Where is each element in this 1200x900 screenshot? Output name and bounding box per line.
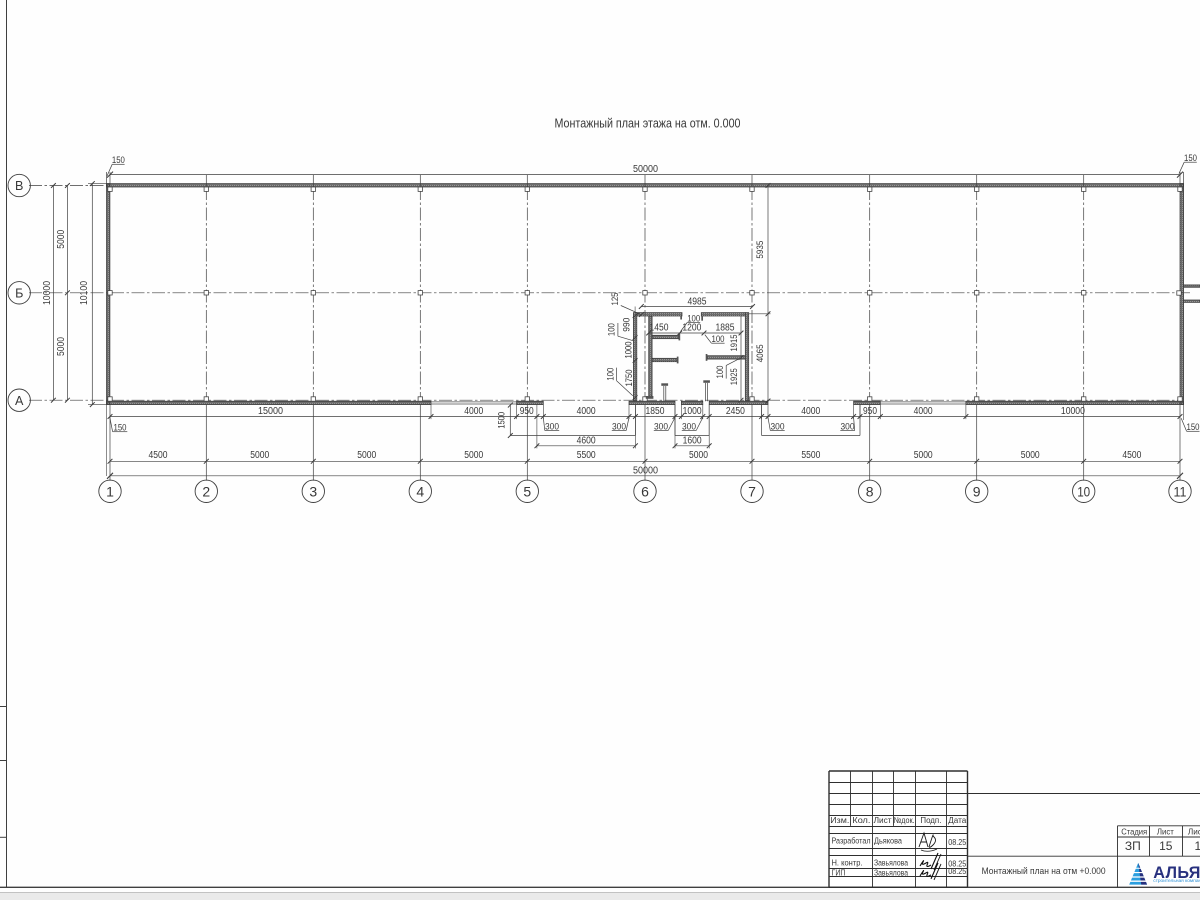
svg-text:990: 990	[622, 318, 632, 332]
svg-text:1450: 1450	[650, 323, 669, 334]
svg-text:150: 150	[114, 422, 127, 432]
svg-text:15000: 15000	[258, 406, 283, 417]
svg-text:5000: 5000	[56, 229, 67, 248]
svg-text:1200: 1200	[682, 323, 701, 334]
svg-text:Дата: Дата	[948, 815, 966, 825]
svg-text:100: 100	[712, 334, 725, 344]
svg-text:1925: 1925	[729, 368, 739, 385]
svg-text:5000: 5000	[914, 450, 933, 461]
svg-text:ГИП: ГИП	[832, 868, 846, 878]
svg-text:2: 2	[202, 483, 210, 499]
svg-text:10000: 10000	[42, 281, 53, 305]
svg-text:4500: 4500	[149, 450, 168, 461]
svg-text:1885: 1885	[716, 323, 735, 334]
svg-text:1600: 1600	[683, 435, 702, 446]
svg-text:Н. контр.: Н. контр.	[832, 858, 863, 868]
svg-text:5000: 5000	[1021, 450, 1040, 461]
svg-text:4000: 4000	[577, 406, 596, 417]
svg-text:ЗП: ЗП	[1125, 839, 1141, 853]
svg-text:4000: 4000	[801, 406, 820, 417]
svg-text:08.25: 08.25	[948, 837, 966, 847]
svg-text:Лист: Лист	[874, 815, 892, 825]
svg-text:150: 150	[1184, 153, 1197, 163]
svg-text:Завьялова: Завьялова	[874, 858, 908, 868]
svg-text:Монтажный план на отм +0.000: Монтажный план на отм +0.000	[982, 866, 1106, 877]
svg-text:300: 300	[654, 421, 668, 431]
svg-text:300: 300	[841, 421, 855, 431]
svg-text:Лист: Лист	[1157, 826, 1174, 836]
svg-text:2450: 2450	[726, 406, 745, 417]
svg-text:4: 4	[416, 483, 424, 499]
svg-text:10100: 10100	[79, 281, 90, 305]
svg-text:950: 950	[863, 406, 877, 417]
svg-text:Кол.: Кол.	[852, 815, 870, 825]
svg-text:9: 9	[973, 483, 981, 499]
svg-text:Завьялова: Завьялова	[874, 868, 908, 878]
svg-text:5500: 5500	[801, 450, 820, 461]
svg-text:5935: 5935	[755, 241, 765, 259]
svg-text:4500: 4500	[1122, 450, 1141, 461]
svg-text:№док.: №док.	[894, 815, 915, 825]
svg-text:1: 1	[106, 483, 114, 499]
svg-text:Разработал: Разработал	[832, 835, 871, 845]
svg-text:А: А	[15, 394, 24, 408]
svg-text:150: 150	[112, 155, 125, 165]
svg-text:1850: 1850	[646, 406, 665, 417]
svg-text:300: 300	[612, 421, 626, 431]
svg-text:4985: 4985	[688, 296, 707, 307]
svg-text:4000: 4000	[914, 406, 933, 417]
svg-text:Изм.: Изм.	[830, 815, 849, 825]
svg-text:3: 3	[309, 483, 317, 499]
svg-text:В: В	[15, 179, 23, 193]
svg-text:50000: 50000	[633, 466, 658, 477]
svg-text:1000: 1000	[683, 406, 702, 417]
svg-text:50000: 50000	[633, 164, 658, 175]
svg-text:100: 100	[607, 323, 617, 336]
svg-text:100: 100	[605, 368, 615, 381]
svg-text:7: 7	[748, 483, 756, 499]
svg-text:5000: 5000	[56, 337, 67, 356]
svg-text:6: 6	[641, 483, 649, 499]
svg-text:08.25: 08.25	[948, 866, 966, 876]
svg-text:Б: Б	[15, 286, 23, 300]
svg-text:10000: 10000	[1061, 406, 1085, 417]
svg-text:5500: 5500	[577, 450, 596, 461]
svg-text:4600: 4600	[577, 435, 596, 446]
svg-text:Подп.: Подп.	[920, 815, 941, 825]
svg-text:150: 150	[1187, 422, 1200, 432]
svg-text:125: 125	[610, 293, 620, 306]
svg-text:300: 300	[771, 421, 785, 431]
svg-text:100: 100	[715, 366, 725, 379]
svg-text:5000: 5000	[464, 450, 483, 461]
svg-text:300: 300	[682, 421, 696, 431]
svg-text:Стадия: Стадия	[1121, 826, 1147, 836]
svg-text:Лис: Лис	[1188, 826, 1200, 836]
svg-text:Дьякова: Дьякова	[874, 835, 902, 845]
svg-text:1: 1	[1195, 839, 1200, 853]
svg-text:10: 10	[1077, 483, 1090, 499]
svg-text:5: 5	[523, 483, 531, 499]
svg-text:1750: 1750	[624, 370, 634, 387]
svg-text:1915: 1915	[729, 335, 739, 352]
svg-text:300: 300	[545, 421, 559, 431]
svg-text:1000: 1000	[623, 342, 633, 359]
svg-text:8: 8	[866, 483, 874, 499]
svg-text:100: 100	[687, 313, 700, 323]
svg-text:строительная компания: строительная компания	[1153, 879, 1200, 884]
svg-text:4000: 4000	[464, 406, 483, 417]
svg-text:5000: 5000	[689, 450, 708, 461]
svg-text:11: 11	[1174, 483, 1187, 499]
svg-text:5000: 5000	[250, 450, 269, 461]
svg-text:1500: 1500	[496, 412, 506, 429]
svg-text:5000: 5000	[357, 450, 376, 461]
svg-text:4065: 4065	[755, 344, 765, 362]
svg-text:950: 950	[520, 406, 534, 417]
svg-text:Монтажный план этажа на отм. 0: Монтажный план этажа на отм. 0.000	[555, 116, 741, 131]
svg-text:15: 15	[1159, 839, 1173, 853]
